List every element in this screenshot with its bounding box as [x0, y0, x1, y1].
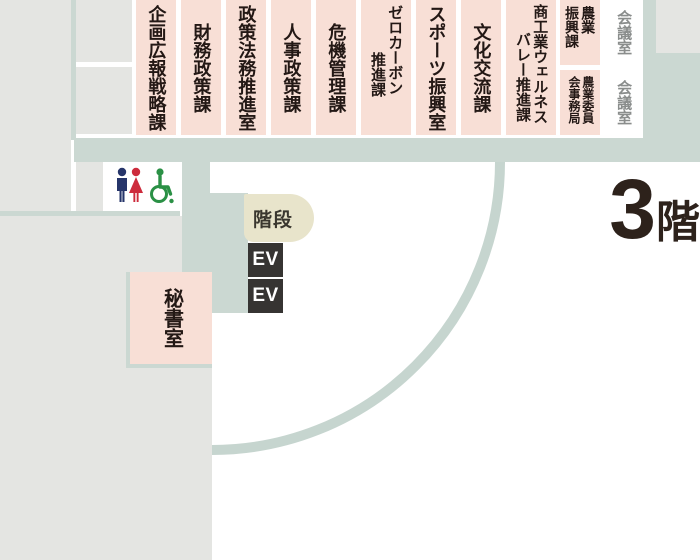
stairs-label-box: 階段 — [244, 194, 314, 242]
wheelchair-accessible-icon — [151, 168, 173, 203]
room-agricultural-committee: 農業委員 会事務局 — [560, 70, 600, 135]
floor-indicator: 3 階 — [596, 160, 700, 244]
room-secretary: 秘書室 — [130, 272, 212, 364]
room-meeting-2: 会議室 — [604, 70, 643, 135]
room-label: 会議室 — [615, 10, 632, 55]
room-label: ゼロカーボン — [386, 5, 403, 95]
room-planning-pr-strategy: 企画広報戦略課 — [136, 0, 176, 135]
room-sports-promotion: スポーツ振興室 — [416, 0, 456, 135]
corridor-wall-band — [74, 138, 700, 162]
room-crisis-management: 危機管理課 — [316, 0, 356, 135]
room-policy-legal-promotion: 政策法務推進室 — [226, 0, 266, 135]
unlabeled-room-top-right — [656, 0, 700, 53]
room-label: 会事務局 — [566, 76, 580, 124]
room-cultural-exchange: 文化交流課 — [461, 0, 501, 135]
room-label: 農業委員 — [580, 76, 594, 124]
room-agriculture-promotion: 農業 振興課 — [560, 0, 600, 65]
restroom-area — [107, 162, 180, 210]
room-label: 振興課 — [564, 6, 580, 48]
room-label: 企画広報戦略課 — [146, 5, 167, 131]
women-restroom-icon — [129, 168, 143, 202]
unlabeled-area-upper-left — [0, 0, 71, 211]
room-zero-carbon-promotion: ゼロカーボン 推進課 — [361, 0, 411, 135]
elevator-1: EV — [248, 243, 283, 277]
elevator-label: EV — [252, 249, 278, 271]
room-label: 推進課 — [369, 52, 386, 97]
elevator-2: EV — [248, 279, 283, 313]
unlabeled-room-top-2 — [76, 67, 132, 134]
room-hr-policy: 人事政策課 — [271, 0, 311, 135]
room-label: 危機管理課 — [326, 23, 347, 113]
room-label: 文化交流課 — [471, 23, 492, 113]
floor-suffix: 階 — [656, 202, 700, 244]
unlabeled-area-lower-left — [0, 216, 212, 560]
room-label: 商工業ウェルネス — [531, 4, 548, 124]
room-label: 人事政策課 — [281, 23, 302, 113]
room-label: 農業 — [580, 6, 596, 34]
floor-map-3f: 企画広報戦略課 財務政策課 政策法務推進室 人事政策課 危機管理課 ゼロカーボン… — [0, 0, 700, 560]
elevator-label: EV — [252, 285, 278, 307]
wall-elevator-block-right — [210, 193, 248, 313]
room-commerce-wellness-valley: 商工業ウェルネス バレー推進課 — [506, 0, 556, 135]
room-meeting-1: 会議室 — [604, 0, 643, 65]
room-label: 政策法務推進室 — [236, 5, 257, 131]
unlabeled-room-top-1 — [76, 0, 132, 62]
stairs-label: 階段 — [253, 205, 293, 232]
floor-number: 3 — [609, 175, 656, 244]
men-restroom-icon — [117, 168, 127, 202]
room-finance-policy: 財務政策課 — [181, 0, 221, 135]
gray-strip-left-of-restroom — [76, 162, 103, 211]
room-label: スポーツ振興室 — [426, 5, 447, 131]
restroom-icons — [113, 167, 175, 205]
room-label: 財務政策課 — [191, 23, 212, 113]
room-label: 会議室 — [615, 80, 632, 125]
room-label: バレー推進課 — [514, 32, 531, 122]
room-label: 秘書室 — [160, 288, 183, 348]
